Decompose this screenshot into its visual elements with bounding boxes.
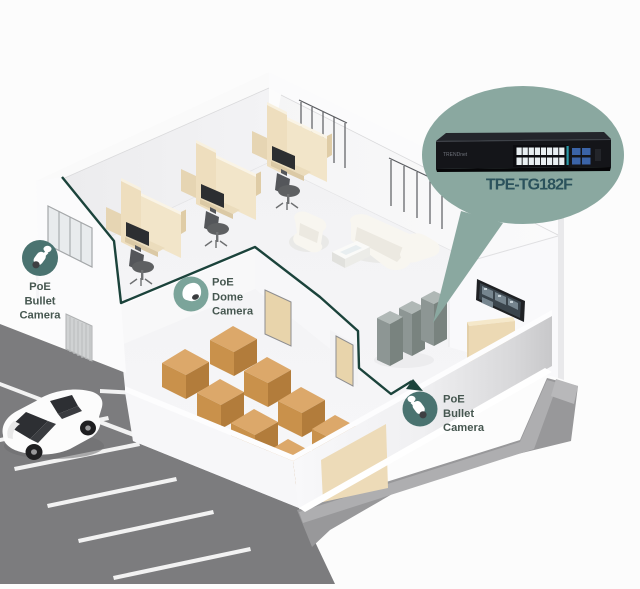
svg-text:PoE: PoE: [29, 281, 51, 293]
svg-text:Camera: Camera: [443, 422, 485, 434]
svg-text:PoE: PoE: [212, 277, 234, 289]
svg-text:Camera: Camera: [212, 306, 254, 318]
svg-text:TRENDnet: TRENDnet: [443, 152, 468, 158]
svg-text:PoE: PoE: [443, 394, 465, 406]
svg-text:Bullet: Bullet: [24, 295, 55, 307]
svg-text:TPE-TG182F: TPE-TG182F: [486, 177, 573, 194]
svg-text:Bullet: Bullet: [443, 408, 474, 420]
svg-text:Camera: Camera: [19, 310, 61, 322]
svg-text:Dome: Dome: [212, 291, 243, 303]
